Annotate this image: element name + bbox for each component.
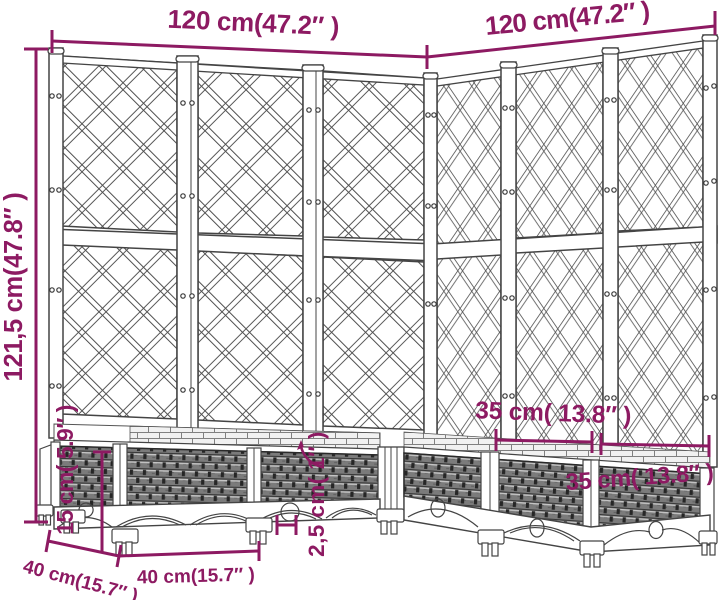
- svg-text:15 cm( 5.9″ ): 15 cm( 5.9″ ): [52, 405, 78, 535]
- svg-text:121,5 cm(47.8″ ): 121,5 cm(47.8″ ): [0, 193, 28, 382]
- svg-text:40 cm(15.7″ ): 40 cm(15.7″ ): [137, 564, 255, 588]
- svg-text:35 cm( 13.8″ ): 35 cm( 13.8″ ): [475, 397, 632, 429]
- svg-text:2,5 cm( 1″ ): 2,5 cm( 1″ ): [304, 431, 329, 557]
